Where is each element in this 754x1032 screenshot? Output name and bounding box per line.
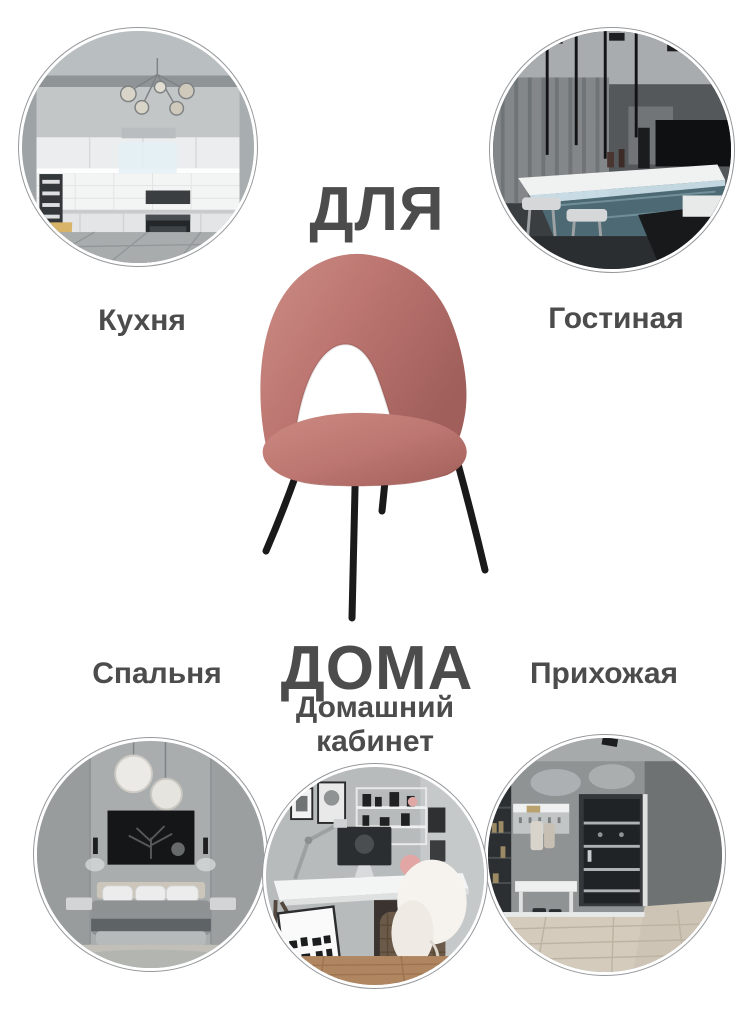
ceiling	[22, 31, 254, 75]
sofa-back	[683, 195, 731, 216]
living-room-photo	[493, 31, 731, 269]
front-door	[579, 794, 648, 906]
headline-for: ДЛЯ	[309, 179, 444, 241]
range-hood	[122, 128, 176, 139]
label-home-office: Домашний кабинет	[285, 691, 465, 759]
open-shelving	[488, 784, 511, 916]
bedroom-photo	[37, 741, 264, 968]
bottle	[619, 149, 625, 167]
hallway-photo-circle	[484, 734, 726, 976]
living-room-photo-circle	[489, 27, 735, 273]
hallway-photo	[488, 738, 722, 972]
floor	[493, 236, 731, 269]
hanging-towel	[531, 821, 544, 850]
window	[119, 142, 177, 173]
product-infographic: ДЛЯ ДОМА Кухня Гостиная Спальня Домашний…	[0, 0, 754, 1032]
home-office-photo	[266, 767, 484, 985]
tv	[656, 120, 731, 166]
bed-base	[96, 931, 206, 945]
label-kitchen: Кухня	[98, 304, 186, 338]
hanging-towel	[544, 823, 555, 848]
speaker	[638, 128, 650, 169]
tile-floor	[22, 232, 254, 263]
label-bedroom: Спальня	[92, 657, 222, 691]
door-handle	[588, 850, 592, 862]
label-living-room: Гостиная	[548, 302, 684, 336]
wall-light-glow	[531, 769, 581, 796]
home-office-photo-circle	[262, 763, 488, 989]
bedroom-photo-circle	[33, 737, 268, 972]
wood-floor	[266, 956, 484, 985]
product-chair-image	[253, 248, 493, 626]
cooktop	[146, 191, 190, 205]
wall-light-glow	[589, 764, 635, 789]
kitchen-photo	[22, 31, 254, 263]
yellow-chair	[45, 222, 72, 263]
backsplash	[37, 173, 240, 210]
kitchen-photo-circle	[18, 27, 258, 267]
baseboard	[488, 912, 645, 917]
countertop	[37, 210, 240, 214]
hat	[527, 806, 541, 813]
bed-throw	[91, 919, 211, 932]
pillows	[103, 886, 199, 902]
bottle	[607, 152, 614, 167]
label-hallway: Прихожая	[530, 657, 678, 691]
